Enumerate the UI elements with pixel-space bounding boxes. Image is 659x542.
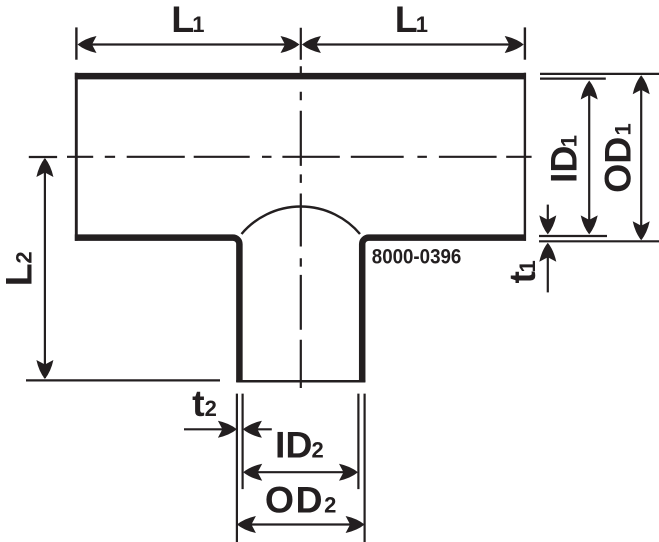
- svg-text:8000-0396: 8000-0396: [372, 244, 462, 268]
